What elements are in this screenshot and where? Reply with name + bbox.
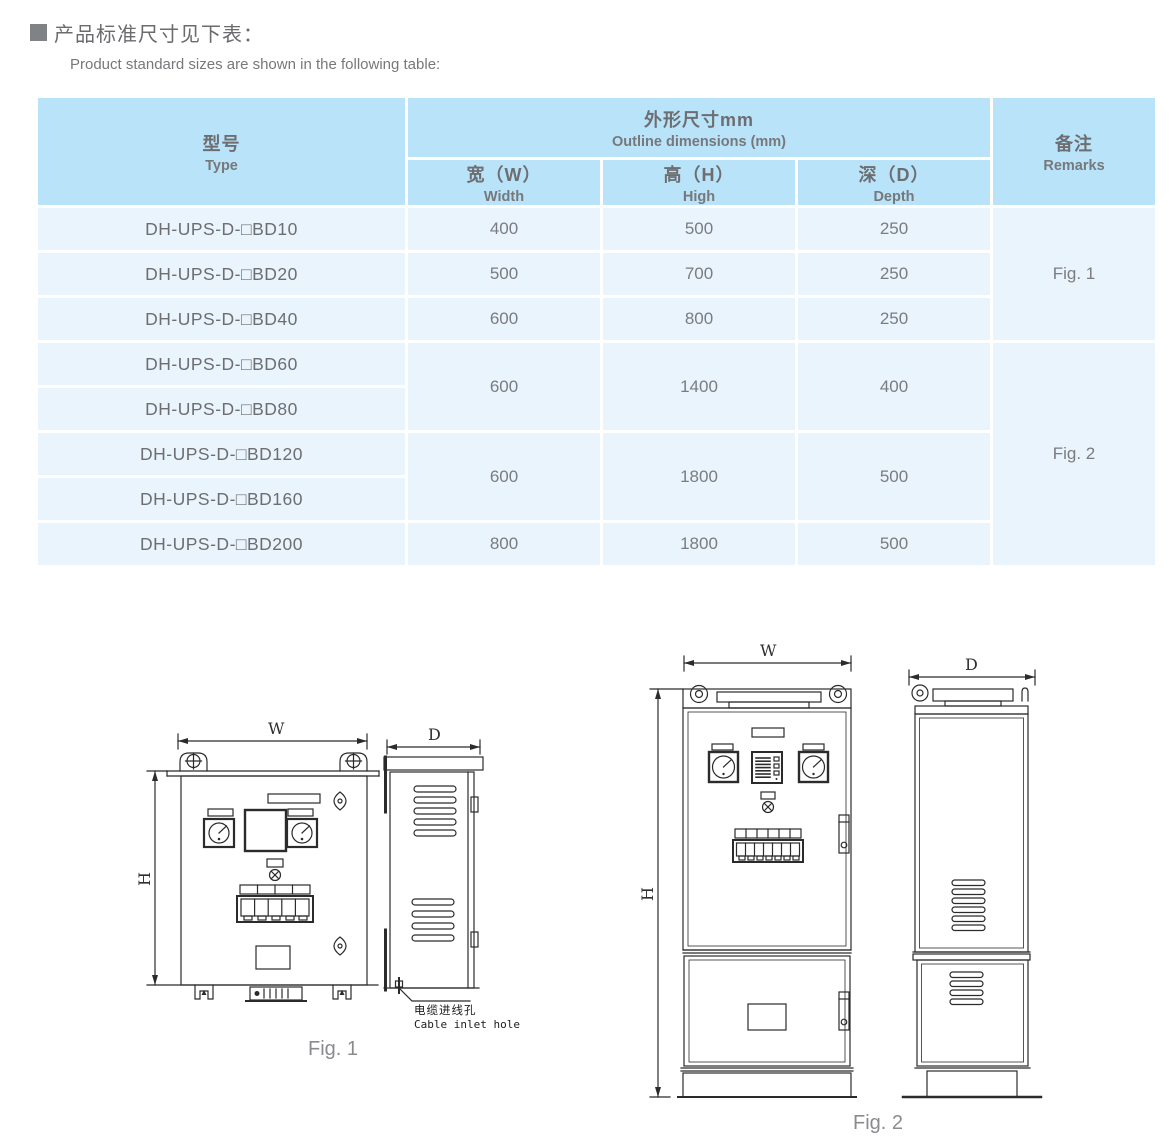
fig2-lower-door — [684, 956, 850, 1066]
base-plinth — [927, 1071, 1017, 1097]
section-title-zh: 产品标准尺寸见下表： — [54, 18, 264, 47]
cell-width: 600 — [407, 297, 602, 342]
mounting-ear-screw-icon — [340, 753, 367, 771]
breaker-block — [237, 885, 313, 922]
col-header-type: 型号 Type — [37, 97, 407, 207]
table-row: DH-UPS-D-□BD40 600 800 250 — [37, 297, 1157, 342]
button-icon — [270, 870, 281, 881]
fig1-side-body — [390, 772, 474, 988]
cell-width: 400 — [407, 207, 602, 252]
fig1-side-view: D — [384, 725, 520, 1031]
cell-high: 1800 — [602, 522, 797, 567]
lifting-eye-icon — [691, 686, 708, 703]
door-handle-icon — [839, 815, 849, 853]
cell-high: 700 — [602, 252, 797, 297]
fig2-caption: Fig. 2 — [818, 1112, 938, 1135]
fig1-height-label: H — [135, 872, 154, 886]
cell-type: DH-UPS-D-□BD60 — [37, 342, 407, 387]
cell-depth: 500 — [797, 522, 992, 567]
indicator-lamp — [267, 859, 283, 867]
fig2-height-label: H — [638, 887, 657, 901]
label-plate — [712, 744, 733, 750]
meter-icon — [799, 752, 828, 782]
lifting-eye-icon — [912, 685, 928, 701]
cable-inlet-label-en: Cable inlet hole — [414, 1018, 520, 1031]
col-header-high: 高（H） High — [602, 159, 797, 207]
fig2-side-lower-body — [917, 960, 1028, 1066]
cable-gland — [246, 987, 306, 1001]
mounting-ear-screw-icon — [180, 753, 207, 771]
cell-high: 800 — [602, 297, 797, 342]
col-header-depth: 深（D） Depth — [797, 159, 992, 207]
table-row: DH-UPS-D-□BD20 500 700 250 — [37, 252, 1157, 297]
label-plate — [208, 809, 233, 816]
table-row: DH-UPS-D-□BD10 400 500 250 Fig. 1 — [37, 207, 1157, 252]
cell-depth-merged: 500 — [797, 432, 992, 522]
cell-remark-fig1: Fig. 1 — [992, 207, 1157, 342]
cell-type: DH-UPS-D-□BD120 — [37, 432, 407, 477]
section-title-en: Product standard sizes are shown in the … — [70, 56, 440, 73]
technical-drawings: W H — [0, 620, 1176, 1148]
table-row: DH-UPS-D-□BD60 600 1400 400 Fig. 2 — [37, 342, 1157, 387]
fig2-width-label: W — [760, 641, 777, 660]
panel-window — [245, 810, 286, 851]
base-plinth — [683, 1073, 851, 1097]
catalog-page: 产品标准尺寸见下表： Product standard sizes are sh… — [0, 0, 1176, 1148]
nameplate — [748, 1004, 786, 1030]
cell-width-merged: 600 — [407, 342, 602, 432]
label-plate — [288, 809, 313, 816]
cell-type: DH-UPS-D-□BD80 — [37, 387, 407, 432]
fig1-caption: Fig. 1 — [278, 1038, 388, 1061]
cell-type: DH-UPS-D-□BD160 — [37, 477, 407, 522]
section-bullet-icon — [30, 24, 47, 41]
louver-vents — [950, 972, 983, 1005]
section-heading: 产品标准尺寸见下表： Product standard sizes are sh… — [30, 18, 440, 73]
col-header-width: 宽（W） Width — [407, 159, 602, 207]
cell-high-merged: 1800 — [602, 432, 797, 522]
mounting-foot-icon — [333, 985, 351, 999]
fig2-side-view: D — [903, 655, 1041, 1097]
cell-depth: 250 — [797, 252, 992, 297]
breaker-block — [733, 829, 803, 862]
fig1-width-label: W — [268, 719, 285, 738]
louver-vents — [952, 880, 985, 931]
fig1-depth-label: D — [428, 725, 441, 744]
door-lock-icon — [334, 937, 346, 955]
door-lock-icon — [334, 792, 346, 810]
cable-inlet-label-zh: 电缆进线孔 — [414, 1003, 477, 1017]
louver-vents — [412, 899, 454, 941]
controller-icon — [752, 752, 782, 783]
label-plate — [803, 744, 824, 750]
fig2-front-view: W H — [638, 641, 856, 1097]
cell-high-merged: 1400 — [602, 342, 797, 432]
cell-type: DH-UPS-D-□BD20 — [37, 252, 407, 297]
col-header-remarks: 备注 Remarks — [992, 97, 1157, 207]
cell-high: 500 — [602, 207, 797, 252]
fig2-depth-label: D — [965, 655, 978, 674]
cable-inlet-callout: 电缆进线孔 Cable inlet hole — [396, 978, 520, 1031]
display-slot — [268, 794, 320, 803]
bolt-icon — [1022, 688, 1028, 701]
cell-width-merged: 600 — [407, 432, 602, 522]
nameplate — [256, 946, 290, 969]
fig1-front-view: W H — [135, 719, 379, 1001]
lifting-eye-icon — [830, 686, 847, 703]
col-header-outline: 外形尺寸mm Outline dimensions (mm) — [407, 97, 992, 159]
meter-icon — [709, 752, 738, 782]
louver-vents — [414, 786, 456, 836]
mounting-foot-icon — [195, 985, 213, 999]
indicator-lamp — [761, 792, 775, 799]
cell-depth: 250 — [797, 297, 992, 342]
meter-icon — [204, 819, 234, 847]
door-handle-icon — [839, 992, 849, 1030]
cell-depth-merged: 400 — [797, 342, 992, 432]
cell-depth: 250 — [797, 207, 992, 252]
cell-type: DH-UPS-D-□BD200 — [37, 522, 407, 567]
table-row: DH-UPS-D-□BD120 600 1800 500 — [37, 432, 1157, 477]
size-table: 型号 Type 外形尺寸mm Outline dimensions (mm) 备… — [35, 95, 1158, 568]
cell-remark-fig2: Fig. 2 — [992, 342, 1157, 567]
table-row: DH-UPS-D-□BD200 800 1800 500 — [37, 522, 1157, 567]
cell-type: DH-UPS-D-□BD40 — [37, 297, 407, 342]
cell-width: 500 — [407, 252, 602, 297]
cell-type: DH-UPS-D-□BD10 — [37, 207, 407, 252]
display-slot — [752, 728, 784, 737]
meter-icon — [287, 819, 317, 847]
cell-width: 800 — [407, 522, 602, 567]
button-icon — [763, 802, 774, 813]
